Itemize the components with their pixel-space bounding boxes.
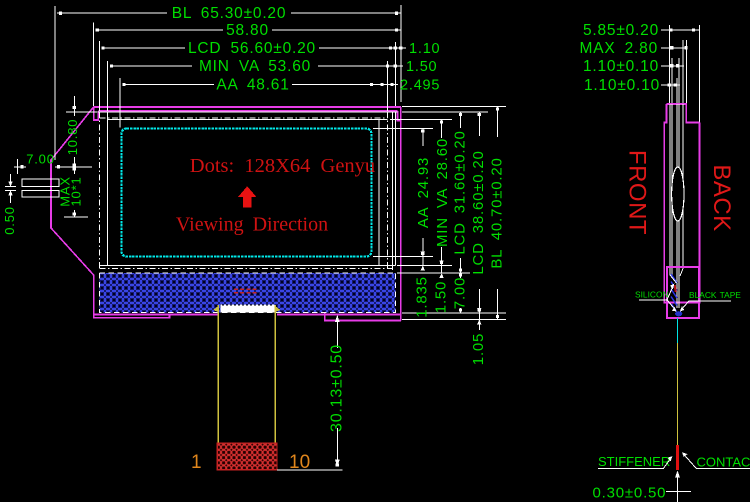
svg-text:LCD 31.60±0.20: LCD 31.60±0.20 (452, 130, 469, 254)
svg-text:AA 24.93: AA 24.93 (415, 157, 432, 228)
svg-text:0.30±0.50: 0.30±0.50 (593, 485, 667, 502)
svg-text:AA 48.61: AA 48.61 (216, 77, 289, 94)
svg-text:7.00: 7.00 (26, 152, 55, 167)
svg-text:MIN VA 53.60: MIN VA 53.60 (199, 58, 311, 75)
svg-text:1.50: 1.50 (406, 59, 437, 75)
svg-text:5.85±0.20: 5.85±0.20 (583, 22, 659, 39)
svg-text:Dots: 128X64 Genyu: Dots: 128X64 Genyu (190, 155, 375, 177)
svg-text:FRONT: FRONT (624, 150, 651, 235)
svg-text:1.50: 1.50 (433, 281, 450, 313)
svg-text:STIFFENER: STIFFENER (598, 454, 670, 469)
svg-text:CONTACT: CONTACT (697, 455, 750, 470)
svg-text:LCD 56.60±0.20: LCD 56.60±0.20 (188, 40, 316, 57)
svg-text:1.10: 1.10 (409, 41, 440, 57)
svg-text:BL 40.70±0.20: BL 40.70±0.20 (489, 157, 506, 268)
svg-text:58.80: 58.80 (226, 22, 269, 39)
svg-text:2.495: 2.495 (400, 78, 440, 94)
svg-text:0.50: 0.50 (2, 206, 17, 235)
svg-text:BLACK TAPE: BLACK TAPE (689, 290, 741, 300)
svg-text:1.10±0.10: 1.10±0.10 (583, 58, 659, 75)
svg-text:1: 1 (191, 452, 202, 473)
svg-text:30.13±0.50: 30.13±0.50 (328, 344, 345, 432)
svg-text:SILICON: SILICON (635, 290, 669, 300)
svg-text:LCD 38.60±0.20: LCD 38.60±0.20 (470, 150, 487, 274)
svg-text:1.05: 1.05 (470, 333, 487, 365)
svg-text:MAX 2.80: MAX 2.80 (580, 40, 658, 57)
svg-text:Viewing Direction: Viewing Direction (176, 214, 328, 236)
svg-text:1.835: 1.835 (414, 276, 431, 318)
svg-text:10.80: 10.80 (65, 119, 80, 156)
svg-text:BL 65.30±0.20: BL 65.30±0.20 (172, 5, 287, 22)
svg-text:7.00: 7.00 (452, 277, 469, 309)
svg-text:MIN VA 28.60: MIN VA 28.60 (434, 138, 451, 247)
svg-text:BACK: BACK (708, 164, 735, 231)
svg-text:1.10±0.10: 1.10±0.10 (584, 77, 660, 94)
svg-text:10*1: 10*1 (69, 177, 84, 207)
